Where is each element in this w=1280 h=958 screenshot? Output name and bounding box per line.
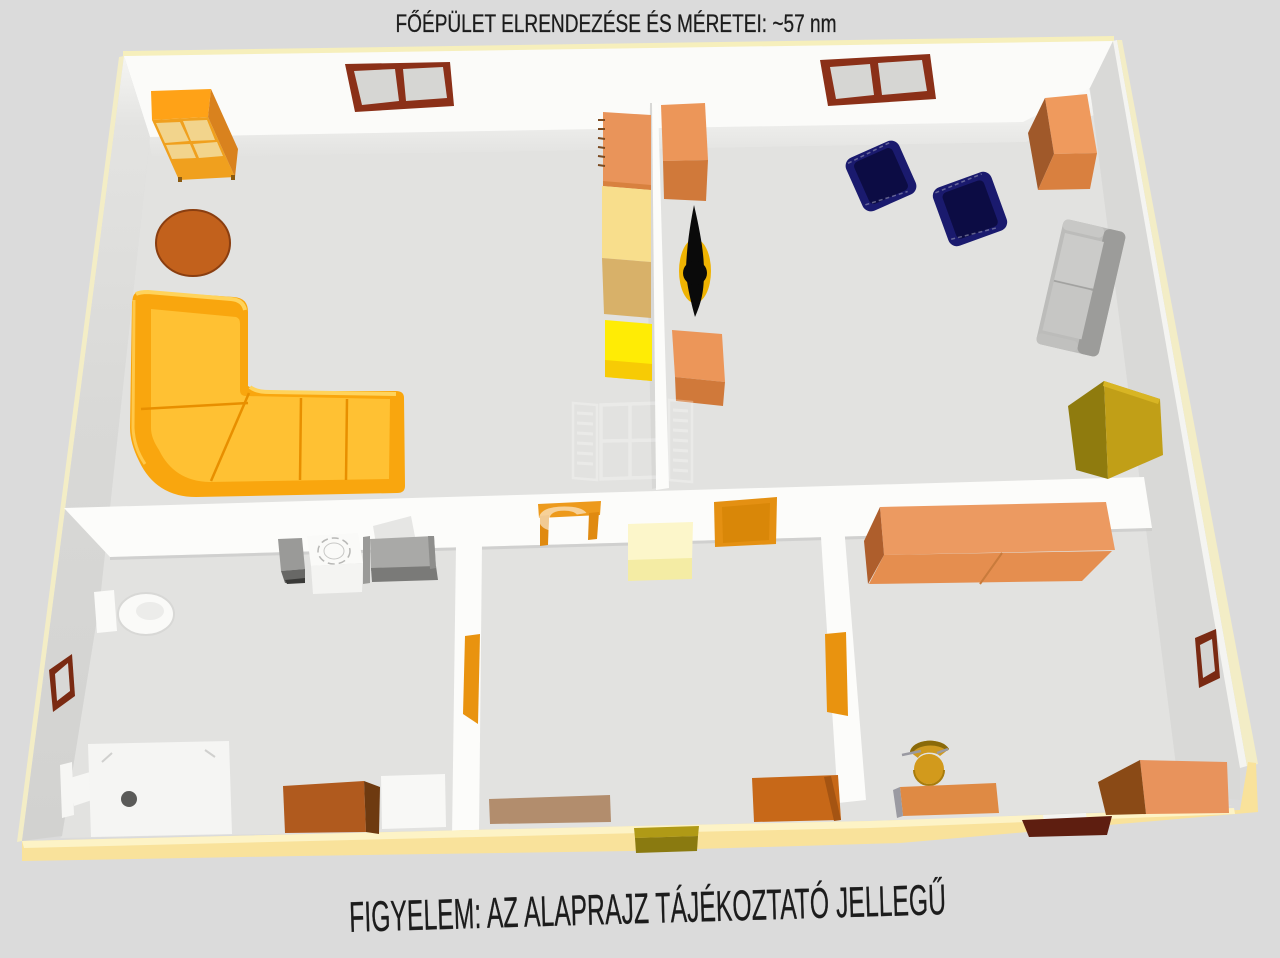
svg-text:FŐÉPÜLET ELRENDEZÉSE ÉS MÉRETE: FŐÉPÜLET ELRENDEZÉSE ÉS MÉRETEI: ~57 nm: [396, 9, 837, 38]
